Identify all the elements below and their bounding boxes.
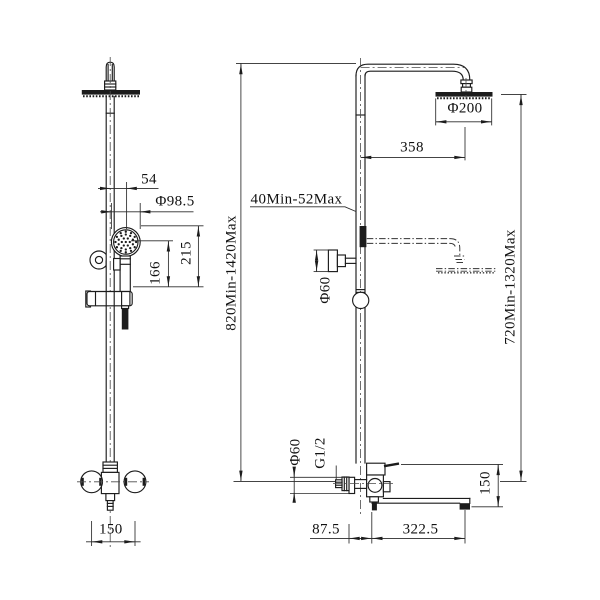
dim-spout-height: 150 xyxy=(479,471,494,495)
dim-connection-thread: G1/2 xyxy=(314,437,329,469)
side-view-drawing xyxy=(328,58,496,514)
arm-clamp xyxy=(360,226,367,247)
dim-handset-offset: 54 xyxy=(141,173,157,188)
shower-system-technical-drawing: 54 Φ98.5 166 215 820Min-1420Max 150 40Mi… xyxy=(0,0,600,600)
ball-joint xyxy=(353,292,369,308)
wall-bracket-side xyxy=(328,250,356,272)
overhead-shower-side xyxy=(436,92,493,97)
overhead-shower-front xyxy=(82,90,140,95)
hose-outlet xyxy=(372,502,377,510)
dim-wall-distance-range: 40Min-52Max xyxy=(251,192,343,207)
dim-spout-length: 322.5 xyxy=(403,523,439,538)
mixer-front xyxy=(77,462,149,510)
mixer-lever xyxy=(384,464,399,467)
dim-handset-center-to-bracket: 166 xyxy=(148,261,163,285)
mixer-side xyxy=(333,463,470,510)
front-view-drawing xyxy=(77,57,149,548)
dim-bracket-knob-diameter: Φ60 xyxy=(318,276,333,303)
spout-tip xyxy=(460,503,470,509)
dim-arm-reach: 358 xyxy=(400,140,424,155)
hand-shower-hose-end xyxy=(122,309,129,330)
dimension-annotations xyxy=(86,63,527,546)
hand-shower-front xyxy=(111,228,140,292)
phantom-lowered-position xyxy=(367,239,496,273)
dim-overall-height-range: 820Min-1420Max xyxy=(225,215,240,331)
dim-handset-top-to-bracket: 215 xyxy=(179,241,194,265)
dim-handset-diameter: Φ98.5 xyxy=(155,194,194,209)
slider-bracket-front xyxy=(87,292,132,306)
dim-head-diameter: Φ200 xyxy=(447,101,482,116)
dim-tap-handle-spacing: 150 xyxy=(99,523,123,538)
dim-wall-to-spout-pivot: 87.5 xyxy=(312,523,340,538)
dim-head-height-range: 720Min-1320Max xyxy=(503,229,518,345)
dim-escutcheon-diameter: Φ60 xyxy=(289,438,304,465)
wall-escutcheon xyxy=(349,477,355,493)
